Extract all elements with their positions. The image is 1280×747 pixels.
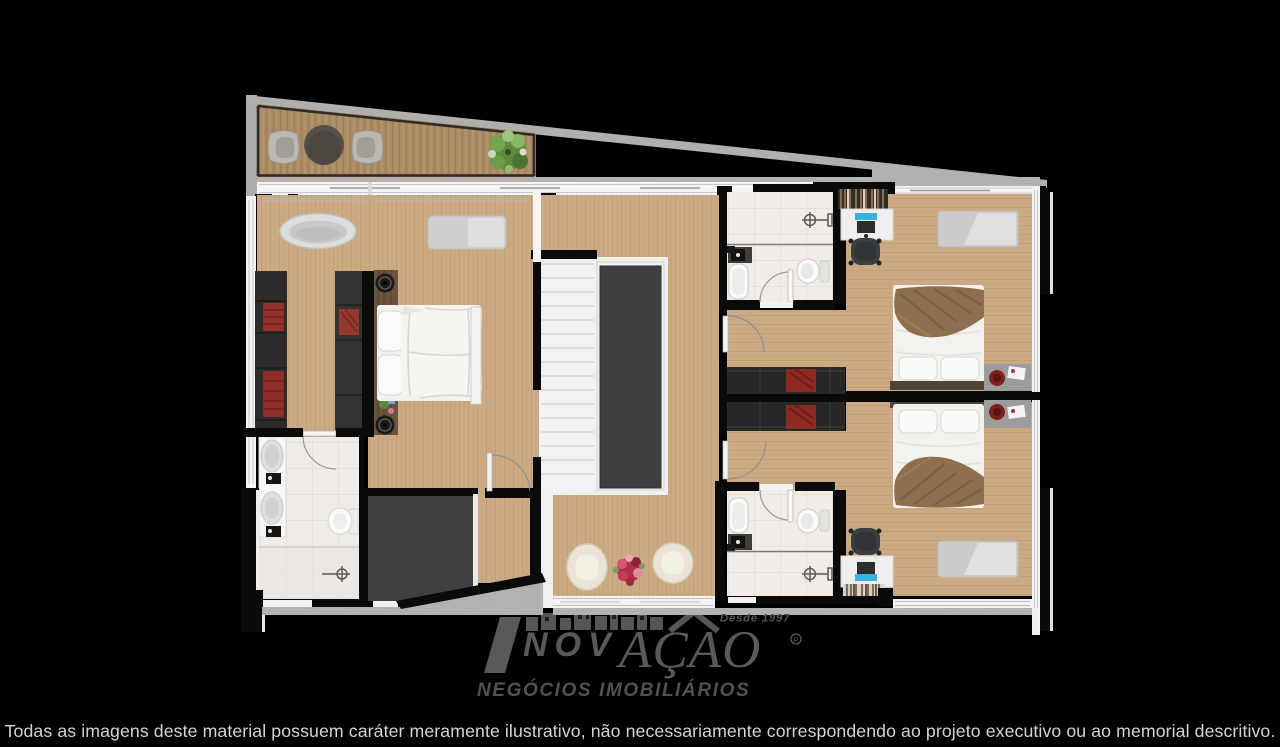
svg-text:NEGÓCIOS IMOBILIÁRIOS: NEGÓCIOS IMOBILIÁRIOS [477,679,750,701]
svg-text:R: R [793,637,798,644]
svg-text:AÇAO: AÇAO [616,621,761,679]
svg-text:NOV: NOV [523,626,618,664]
